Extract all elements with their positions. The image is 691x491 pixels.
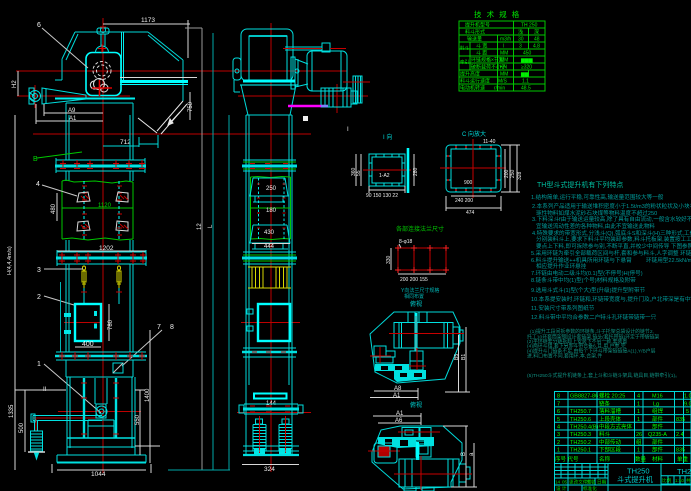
svg-text:835: 835: [676, 448, 685, 454]
svg-text:TH2: TH2: [677, 467, 691, 476]
svg-text:280: 280: [413, 167, 419, 176]
svg-text:328: 328: [517, 171, 523, 180]
svg-text:料斗: 料斗: [599, 430, 611, 438]
svg-text:55: 55: [356, 170, 362, 176]
svg-text:部件: 部件: [652, 446, 664, 454]
svg-text:8: 8: [170, 324, 174, 331]
svg-text:9.选用斗式斗(1)型(个大)型(升级)提升型附带节: 9.选用斗式斗(1)型(个大)型(升级)提升型附带节: [531, 286, 645, 294]
svg-text:4: 4: [637, 394, 640, 400]
svg-text:材料: 材料: [652, 455, 664, 463]
svg-text:A6: A6: [395, 418, 403, 424]
svg-text:8.链条斗带中均(1)型(个号)材料规格及附带: 8.链条斗带中均(1)型(个号)材料规格及附带: [531, 276, 636, 284]
svg-text:444: 444: [264, 244, 275, 250]
svg-text:7.环链由电动二级斗均(0.1)型(不停号)H(停号): 7.环链由电动二级斗均(0.1)型(不停号)H(停号): [531, 269, 643, 277]
svg-text:上段壳体: 上段壳体: [599, 415, 622, 423]
svg-text:Q235-A: Q235-A: [648, 432, 667, 438]
svg-text:5: 5: [557, 417, 560, 423]
svg-text:250: 250: [510, 169, 516, 178]
svg-text:m3/h: m3/h: [500, 37, 511, 43]
svg-text:9.0: 9.0: [684, 401, 691, 407]
svg-text:1400: 1400: [145, 388, 151, 402]
svg-text:1120: 1120: [98, 203, 112, 209]
svg-text:数量: 数量: [635, 455, 647, 463]
svg-text:TH 250: TH 250: [521, 23, 538, 29]
svg-text:6.料斗提升输送++机具所用环链与下悬臂: 6.料斗提升输送++机具所用环链与下悬臂: [531, 256, 632, 264]
svg-text:相应提升作业环悬挂: 相应提升作业环悬挂: [536, 262, 587, 270]
svg-text:1.1: 1.1: [522, 79, 529, 85]
svg-text:中部传动: 中部传动: [599, 438, 622, 446]
svg-text:A8: A8: [394, 386, 402, 392]
svg-text:1: 1: [37, 361, 41, 368]
svg-text:250: 250: [266, 186, 277, 192]
svg-text:标准化: 标准化: [583, 485, 597, 491]
svg-text:A1: A1: [69, 116, 77, 122]
svg-text:10.本系提安装时,环链和,环链带宽度与,提升门及,户北带深: 10.本系提安装时,环链和,环链带宽度与,提升门及,户北带深是有中链提升环链有两…: [531, 295, 691, 303]
svg-text:料斗运行速度: 料斗运行速度: [460, 78, 490, 85]
svg-text:4.8: 4.8: [533, 44, 540, 50]
svg-text:r/min: r/min: [494, 86, 505, 92]
svg-text:琢性物料如煤水泥砂石块煤等物料温度不超过250: 琢性物料如煤水泥砂石块煤等物料温度不超过250: [536, 209, 657, 217]
svg-text:30: 30: [518, 37, 524, 43]
svg-text:1.0: 1.0: [684, 394, 691, 400]
svg-text:4.特殊要求的带宽形式,分浅斗(Q),弧底斗S和深斗(H)三: 4.特殊要求的带宽形式,分浅斗(Q),弧底斗S和深斗(H)三种形式,工作时的输送…: [532, 229, 691, 237]
svg-text:14: 14: [555, 480, 561, 485]
svg-text:料斗形式: 料斗形式: [465, 29, 485, 36]
svg-text:900: 900: [464, 180, 473, 186]
svg-text:474: 474: [466, 210, 475, 216]
svg-text:落料溜槽: 落料溜槽: [599, 407, 622, 415]
svg-text:240 200: 240 200: [455, 198, 473, 204]
svg-text:部件: 部件: [652, 423, 664, 431]
svg-text:各部连接法兰尺寸: 各部连接法兰尺寸: [396, 225, 444, 233]
svg-text:MM: MM: [500, 51, 508, 57]
svg-text:输送量: 输送量: [467, 36, 482, 43]
svg-text:B5: B5: [454, 354, 460, 360]
svg-text:进,料口布置不同,套用环,本,合架,件: 进,料口布置不同,套用环,本,合架,件: [527, 353, 602, 360]
svg-text:6: 6: [37, 22, 41, 29]
svg-text:≥320: ≥320: [521, 65, 532, 71]
svg-text:下部区段: 下部区段: [599, 446, 622, 454]
svg-text:单重: 单重: [677, 455, 689, 463]
svg-text:TH型斗式提升机有下列特点: TH型斗式提升机有下列特点: [537, 180, 623, 189]
svg-text:(4)两环斗组,套下另卸斗带合备6,且,用,户参,完: (4)两环斗组,套下另卸斗带合备6,且,用,户参,完: [527, 343, 626, 350]
svg-text:MM: MM: [500, 58, 508, 64]
svg-text:11.安装尺寸带系列图纸节: 11.安装尺寸带系列图纸节: [531, 304, 595, 312]
svg-text:TH250.7: TH250.7: [570, 409, 591, 415]
svg-text:324: 324: [264, 466, 275, 473]
svg-text:180: 180: [266, 208, 277, 214]
svg-text:400: 400: [82, 341, 94, 348]
svg-text:A1: A1: [393, 393, 401, 399]
svg-text:26: 26: [636, 432, 642, 438]
svg-text:B: B: [33, 156, 38, 163]
svg-text:330: 330: [386, 255, 392, 264]
svg-text:C 向放大: C 向放大: [462, 130, 486, 138]
svg-text:M16: M16: [652, 394, 663, 400]
svg-text:835: 835: [676, 417, 685, 423]
svg-text:环链用型22.5kN/m斗距离: 环链用型22.5kN/m斗距离: [646, 256, 691, 264]
svg-text:名: 名: [591, 479, 596, 486]
svg-text:要点上下料,即可拆除参与别,不断平直,并校少中间传导 下图参: 要点上下料,即可拆除参与别,不断平直,并校少中间传导 下图参照表上: [536, 242, 691, 250]
svg-text:M/S: M/S: [498, 79, 508, 85]
svg-text:8: 8: [557, 394, 560, 400]
svg-text:1.结构简单,运行平稳,可靠性高,输送量范围较大等一般: 1.结构简单,运行平稳,可靠性高,输送量范围较大等一般: [531, 193, 664, 201]
svg-text:KN: KN: [500, 65, 507, 71]
svg-text:200 200 155: 200 200 155: [400, 277, 428, 283]
svg-text:2.本系列产品适用于输送堆积密度小于1.5t/m3的粉状粒状: 2.本系列产品适用于输送堆积密度小于1.5t/m3的粉状粒状及小块状的无磨琢性半…: [532, 202, 691, 210]
svg-text:(4)提升斗门链条不足,由每个下环斗带架链链接A(1),Y/: (4)提升斗门链条不足,由每个下环斗带架链链接A(1),Y/B户层: [527, 348, 656, 355]
svg-text:TH250.1: TH250.1: [570, 448, 591, 454]
svg-text:A1: A1: [396, 411, 404, 417]
svg-text:部件: 部件: [652, 438, 664, 446]
svg-text:GB8827-86: GB8827-86: [570, 394, 598, 400]
svg-text:1044: 1044: [91, 471, 106, 478]
svg-text:550: 550: [135, 414, 141, 425]
svg-text:名称: 名称: [599, 455, 611, 463]
svg-text:48: 48: [534, 37, 540, 43]
svg-text:3.下料深斗f由于输送运量较高,除了具有自由流动,一般含水较: 3.下料深斗f由于输送运量较高,除了具有自由流动,一般含水较好不结块物,方才: [532, 215, 691, 223]
svg-text:组焊: 组焊: [652, 407, 664, 415]
svg-text:A9: A9: [68, 108, 76, 114]
svg-text:电动机转速: 电动机转速: [460, 85, 485, 92]
svg-text:12: 12: [197, 223, 203, 230]
svg-text:俯视: 俯视: [410, 300, 422, 308]
svg-text:1: 1: [637, 409, 640, 415]
svg-text:提升高度: 提升高度: [460, 71, 480, 78]
svg-text:(1)提升工段间拆参数的环链条,斗子托架总袋设计的链节2,: (1)提升工段间拆参数的环链条,斗子托架总袋设计的链节2,: [530, 328, 654, 335]
svg-text:2.4: 2.4: [676, 432, 684, 438]
svg-text:5: 5: [686, 409, 689, 415]
svg-text:宜输送流动性差的各种物料,由此不宜输送此物料: 宜输送流动性差的各种物料,由此不宜输送此物料: [536, 222, 655, 230]
svg-text:1:10: 1:10: [675, 478, 684, 483]
svg-text:4: 4: [36, 181, 40, 188]
svg-text:1: 1: [637, 401, 640, 407]
svg-text:共: 共: [686, 477, 691, 484]
svg-text:浅: 浅: [518, 29, 523, 36]
svg-text:430: 430: [264, 230, 275, 236]
svg-text:3: 3: [519, 44, 522, 50]
svg-text:2: 2: [557, 440, 560, 446]
svg-text:链条: 链条: [599, 399, 611, 407]
svg-text:MM: MM: [500, 72, 508, 78]
svg-text:环链规格×节距: 环链规格×节距: [471, 57, 504, 64]
svg-text:中段方式壳体: 中段方式壳体: [599, 423, 633, 431]
svg-text:I 向: I 向: [383, 133, 392, 141]
svg-text:48.5: 48.5: [521, 86, 531, 92]
svg-text:Lg: Lg: [653, 401, 659, 407]
svg-text:部件: 部件: [652, 415, 664, 423]
svg-text:4: 4: [557, 425, 560, 431]
svg-text:750: 750: [188, 101, 194, 112]
svg-text:1: 1: [557, 448, 560, 454]
svg-text:1335: 1335: [9, 404, 15, 418]
svg-text:Y向法兰尺寸规格: Y向法兰尺寸规格: [401, 287, 439, 294]
svg-text:斗 宽: 斗 宽: [476, 43, 487, 50]
svg-text:牵引: 牵引: [460, 59, 469, 66]
svg-text:90 150 130 22: 90 150 130 22: [366, 193, 398, 199]
svg-text:▆▆: ▆▆: [520, 72, 529, 78]
svg-text:5.采用环链为牵引全部载荷区间与杆,套和参与料斗,人字调整: 5.采用环链为牵引全部载荷区间与杆,套和参与料斗,人字调整 环链状况配单间传动,…: [531, 249, 691, 257]
svg-text:1173: 1173: [141, 17, 155, 24]
svg-text:3: 3: [37, 267, 41, 274]
svg-text:3: 3: [557, 432, 560, 438]
svg-text:8-φ18: 8-φ18: [399, 239, 412, 245]
svg-text:TH250.3: TH250.3: [570, 432, 591, 438]
svg-text:TH250.2: TH250.2: [570, 440, 591, 446]
svg-text:(5)TH250斗式提升机链条上,套上斗和斗链斗架具,链具目: (5)TH250斗式提升机链条上,套上斗和斗链斗架具,链具目,链带牵引(1)。: [527, 372, 680, 379]
svg-text:H2: H2: [12, 80, 18, 88]
svg-text:H(4,4,4m/s): H(4,4,4m/s): [7, 246, 13, 275]
svg-text:TH250.4(B): TH250.4(B): [570, 425, 599, 431]
svg-text:05: 05: [562, 480, 568, 485]
svg-text:设 计: 设 计: [556, 485, 567, 491]
svg-text:450: 450: [523, 51, 532, 57]
svg-text:深: 深: [534, 29, 539, 36]
svg-text:12.料斗带中平均合参数二户特斗孔环链带链带一只: 12.料斗带中平均合参数二户特斗孔环链带链带一只: [531, 313, 657, 321]
svg-text:l: l: [503, 44, 504, 50]
svg-text:组: 组: [636, 438, 642, 446]
svg-text:7: 7: [557, 401, 560, 407]
svg-text:1: 1: [637, 448, 640, 454]
svg-text:7: 7: [157, 324, 161, 331]
svg-text:500: 500: [19, 422, 25, 433]
svg-text:480: 480: [51, 203, 57, 214]
svg-text:相同布置: 相同布置: [404, 293, 424, 300]
svg-text:1: 1: [637, 417, 640, 423]
svg-text:技 术 规 格: 技 术 规 格: [474, 9, 521, 19]
svg-text:料斗: 料斗: [460, 45, 469, 52]
svg-text:780: 780: [108, 319, 114, 330]
svg-text:6: 6: [557, 409, 560, 415]
svg-text:俯视: 俯视: [410, 401, 422, 409]
svg-text:斗式提升机: 斗式提升机: [617, 475, 654, 484]
svg-text:B1: B1: [461, 354, 467, 360]
svg-text:TH250.6: TH250.6: [570, 417, 591, 423]
svg-text:螺栓 20:25: 螺栓 20:25: [599, 392, 625, 400]
svg-text:▆▆▆: ▆▆▆: [520, 58, 533, 64]
svg-text:分别装料斗上,要求下料斗平均装卸参数,料斗托板架,装置按工工: 分别装料斗上,要求下料斗平均装卸参数,料斗托板架,装置按工工具卸带卸料架: [536, 235, 691, 243]
svg-text:斗 距: 斗 距: [476, 51, 487, 57]
svg-text:比例: 比例: [662, 477, 672, 484]
svg-text:2: 2: [37, 294, 41, 301]
svg-text:序号 代号: 序号 代号: [555, 455, 579, 463]
svg-text:1-A2: 1-A2: [379, 173, 390, 179]
svg-text:11-40: 11-40: [483, 139, 496, 145]
svg-text:B: B: [461, 452, 467, 456]
svg-text:提升机型号: 提升机型号: [465, 22, 490, 29]
